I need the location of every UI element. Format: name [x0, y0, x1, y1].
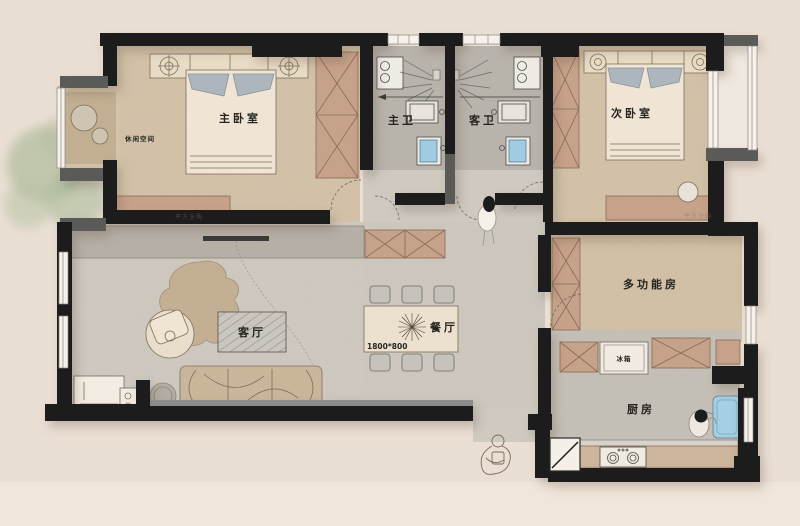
- floorplan-canvas: 主卧室 主卫 客卫 次卧室 多功能房 客厅 餐厅 厨房 休闲空间 冰箱 1800…: [0, 0, 800, 526]
- watermark-text: 平方全购: [684, 212, 712, 220]
- tv-icon: [203, 236, 269, 241]
- dining-chair: [402, 354, 422, 371]
- dining-chair: [370, 354, 390, 371]
- window-icon: [744, 398, 753, 442]
- label-kitchen: 厨房: [627, 402, 655, 416]
- label-multifunction-room: 多功能房: [623, 277, 679, 291]
- master-wardrobe: [316, 52, 358, 178]
- multifunction-wardrobe: [552, 238, 580, 330]
- dining-chair: [370, 286, 390, 303]
- label-dining-room: 餐厅: [429, 320, 458, 334]
- tv-console: [68, 226, 364, 258]
- window-icon: [59, 316, 68, 368]
- cabinet: [652, 338, 710, 368]
- dining-chair: [434, 286, 454, 303]
- label-second-bedroom: 次卧室: [611, 106, 653, 120]
- floorplan-image: 主卧室 主卫 客卫 次卧室 多功能房 客厅 餐厅 厨房 休闲空间 冰箱 1800…: [0, 0, 800, 526]
- label-master-bedroom: 主卧室: [219, 111, 261, 125]
- label-living-room: 客厅: [237, 325, 266, 339]
- background-lower-strip: [0, 482, 800, 526]
- label-master-bathroom: 主卫: [388, 113, 416, 127]
- window-icon: [463, 35, 500, 44]
- window-icon: [708, 71, 718, 148]
- window-icon: [59, 252, 68, 304]
- second-wardrobe: [551, 50, 579, 168]
- cabinet: [560, 342, 598, 372]
- label-fridge: 冰箱: [617, 354, 632, 363]
- stove-icon: [600, 447, 646, 467]
- window-icon: [748, 46, 757, 150]
- entry-door: [550, 438, 580, 471]
- cabinet: [716, 340, 740, 364]
- desk-stool: [678, 182, 698, 202]
- watermark-text: 平方全购: [175, 213, 203, 221]
- hall-cabinet: [365, 230, 445, 258]
- centerpiece-icon: [398, 313, 426, 341]
- kitchen-counter: [558, 446, 738, 468]
- label-leisure-area: 休闲空间: [124, 134, 155, 143]
- leisure-pouf: [92, 128, 108, 144]
- label-table-size: 1800*800: [367, 342, 407, 351]
- window-icon: [746, 306, 756, 344]
- bedroom-cabinet: [108, 196, 230, 212]
- dining-chair: [402, 286, 422, 303]
- window-icon: [388, 35, 419, 44]
- dining-chair: [434, 354, 454, 371]
- label-guest-bathroom: 客卫: [468, 113, 497, 127]
- leisure-pouf: [71, 105, 97, 131]
- washer-icon: [514, 57, 540, 89]
- washer-icon: [377, 57, 403, 89]
- window-icon: [57, 88, 65, 168]
